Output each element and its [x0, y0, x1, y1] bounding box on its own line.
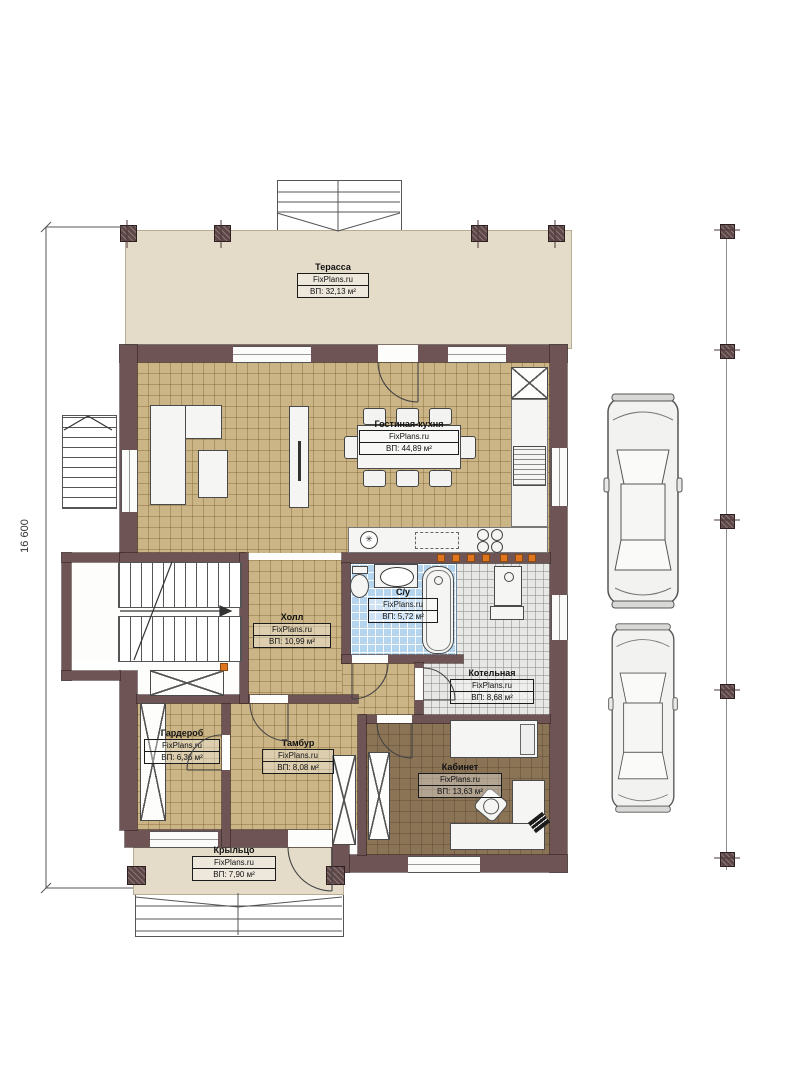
tv-stand	[289, 406, 309, 508]
window-top-1	[233, 346, 311, 363]
porch-post	[326, 866, 345, 885]
office-daybed	[450, 720, 538, 758]
room-label-vestibule: Тамбур FixPlans.ru ВП: 8,08 м²	[262, 738, 334, 774]
stove-burner	[477, 541, 489, 553]
area-row: ВП: 6,36 м²	[145, 751, 219, 763]
area-row: ВП: 8,68 м²	[451, 691, 533, 703]
wall-hall-bath	[342, 563, 350, 663]
bathroom-sink-icon	[380, 567, 414, 587]
terrace-post	[471, 225, 488, 242]
dishwasher-dashed	[415, 532, 459, 549]
car-top-view-2	[603, 622, 683, 819]
area-row: ВП: 8,08 м²	[263, 761, 333, 773]
room-name: Гостиная-кухня	[359, 419, 459, 430]
accent-dot	[482, 554, 490, 562]
room-label-hall: Холл FixPlans.ru ВП: 10,99 м²	[253, 612, 331, 648]
brand-row: FixPlans.ru	[263, 750, 333, 761]
dining-chair	[429, 470, 452, 487]
bumpout-wall-left	[62, 553, 71, 680]
kitchen-sink-unit	[513, 446, 546, 486]
brand-row: FixPlans.ru	[360, 431, 458, 442]
terrace-post	[214, 225, 231, 242]
carport-post	[720, 224, 735, 239]
brand-row: FixPlans.ru	[419, 774, 501, 785]
window-top-2	[448, 346, 506, 363]
sofa-seat	[150, 405, 186, 505]
door-gap-office	[377, 715, 412, 723]
room-name: Холл	[253, 612, 331, 623]
room-name: С/у	[368, 587, 438, 598]
wall-vestibule-office	[358, 715, 366, 855]
accent-dot	[528, 554, 536, 562]
dining-chair	[396, 470, 419, 487]
door-gap-bathroom	[352, 655, 388, 663]
brand-row: FixPlans.ru	[369, 599, 437, 610]
room-name: Терасса	[297, 262, 369, 273]
accent-dot	[500, 554, 508, 562]
window-office-bottom	[408, 856, 480, 873]
room-name: Крыльцо	[192, 845, 276, 856]
window-left	[121, 450, 138, 512]
brand-row: FixPlans.ru	[298, 274, 368, 285]
carport-edge-line	[726, 227, 727, 870]
side-stair-left	[62, 415, 117, 509]
office-chair-seat	[480, 795, 503, 818]
outer-wall-left-lower	[120, 671, 137, 830]
stair-flight-upper	[118, 562, 242, 608]
floor-plan-canvas: 16 600	[0, 0, 792, 1080]
stair-flight-lower	[118, 616, 242, 662]
room-label-porch: Крыльцо FixPlans.ru ВП: 7,90 м²	[192, 845, 276, 881]
room-label-living-kitchen: Гостиная-кухня FixPlans.ru ВП: 44,89 м²	[359, 419, 459, 455]
carport-post	[720, 514, 735, 529]
accent-dot	[220, 663, 228, 671]
dimension-label-left: 16 600	[19, 519, 31, 553]
area-row: ВП: 32,13 м²	[298, 285, 368, 297]
wall-wardrobe-vestibule	[222, 700, 230, 847]
closet-under-stairs	[150, 670, 224, 696]
room-label-bathroom: С/у FixPlans.ru ВП: 5,72 м²	[368, 587, 438, 623]
tv-screen	[298, 441, 301, 481]
door-gap-porch	[288, 830, 332, 847]
window-right-1	[551, 448, 568, 506]
room-name: Кабинет	[418, 762, 502, 773]
brand-row: FixPlans.ru	[193, 857, 275, 868]
accent-dot	[437, 554, 445, 562]
toilet-bowl	[350, 574, 369, 598]
kitchen-sink-icon: ✳	[360, 531, 378, 549]
porch-post	[127, 866, 146, 885]
room-label-boiler: Котельная FixPlans.ru ВП: 8,68 м²	[450, 668, 534, 704]
room-name: Тамбур	[262, 738, 334, 749]
terrace-post	[120, 225, 137, 242]
brand-row: FixPlans.ru	[145, 740, 219, 751]
dining-chair	[459, 436, 476, 459]
stove-burner	[477, 529, 489, 541]
boiler-dial	[504, 572, 514, 582]
bumpout-wall-bottom	[62, 671, 120, 680]
stove-burner	[491, 529, 503, 541]
door-gap-boiler	[415, 668, 423, 700]
carport-post	[720, 344, 735, 359]
room-label-office: Кабинет FixPlans.ru ВП: 13,63 м²	[418, 762, 502, 798]
entry-steps-top	[277, 180, 402, 234]
door-gap-wardrobe	[222, 735, 230, 770]
car-top-view-1	[603, 392, 683, 615]
stove-burner	[491, 541, 503, 553]
accent-dot	[452, 554, 460, 562]
window-right-2	[551, 595, 568, 640]
door-gap-vestibule	[250, 695, 288, 703]
area-row: ВП: 13,63 м²	[419, 785, 501, 797]
accent-dot	[515, 554, 523, 562]
room-name: Гардероб	[144, 728, 220, 739]
porch-steps-bottom	[135, 893, 344, 937]
pillow	[520, 724, 535, 755]
toilet-tank	[352, 566, 368, 574]
boiler-unit	[494, 566, 522, 606]
door-gap-living	[378, 345, 418, 362]
room-label-wardrobe: Гардероб FixPlans.ru ВП: 6,36 м²	[144, 728, 220, 764]
carport-post	[720, 684, 735, 699]
room-label-terrace: Терасса FixPlans.ru ВП: 32,13 м²	[297, 262, 369, 298]
carport-post	[720, 852, 735, 867]
bumpout-wall-top	[62, 553, 120, 562]
boiler-base	[490, 606, 524, 620]
brand-row: FixPlans.ru	[254, 624, 330, 635]
area-row: ВП: 5,72 м²	[369, 610, 437, 622]
vestibule-storage	[332, 755, 356, 845]
dining-chair	[363, 470, 386, 487]
bathtub-drain	[434, 576, 443, 585]
area-row: ВП: 44,89 м²	[360, 442, 458, 454]
area-row: ВП: 7,90 м²	[193, 868, 275, 880]
kitchen-corner-shaft	[511, 367, 548, 399]
area-row: ВП: 10,99 м²	[254, 635, 330, 647]
room-name: Котельная	[450, 668, 534, 679]
accent-dot	[467, 554, 475, 562]
brand-row: FixPlans.ru	[451, 680, 533, 691]
coffee-table	[198, 450, 228, 498]
office-wardrobe	[368, 752, 390, 840]
terrace-post	[548, 225, 565, 242]
